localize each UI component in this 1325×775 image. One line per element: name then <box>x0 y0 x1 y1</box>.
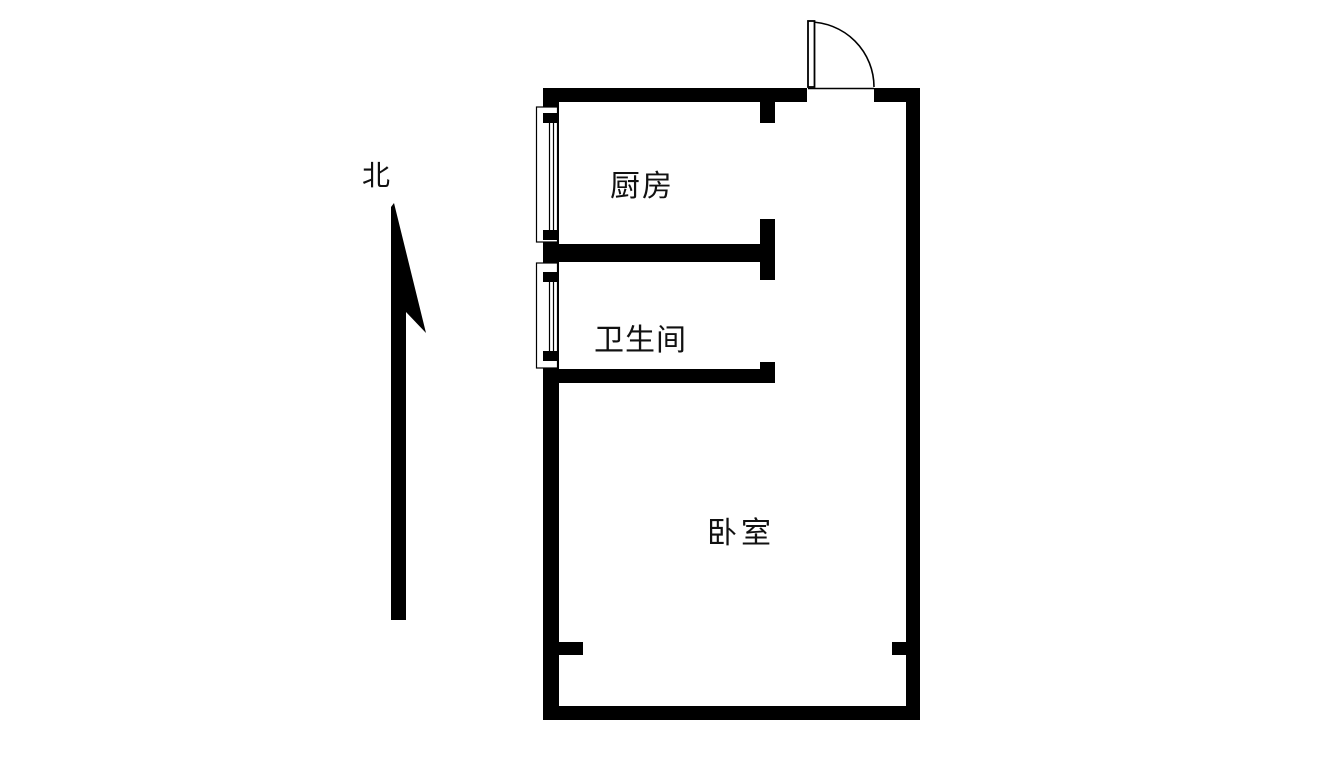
north-compass-label: 北 <box>362 161 390 190</box>
window-symbol-bathroom <box>537 263 558 368</box>
wall-top-left <box>543 88 807 102</box>
north-arrow-icon <box>391 203 426 620</box>
door-symbol-entry <box>808 21 874 89</box>
door-swing-arc <box>809 22 874 87</box>
wall-tab-bottom-right <box>892 642 906 655</box>
wall-kitchen-bathroom-divider <box>559 244 760 262</box>
door-leaf <box>808 21 815 87</box>
room-label-bedroom: 卧室 <box>707 518 775 550</box>
wall-bathroom-bedroom-divider <box>559 369 760 383</box>
room-label-kitchen: 厨房 <box>610 171 674 203</box>
wall-kitchen-opening-stub <box>760 102 775 123</box>
wall-bottom <box>543 706 920 720</box>
wall-bathroom-bedroom-divider-cap <box>760 362 775 383</box>
wall-right <box>906 88 920 720</box>
room-label-bathroom: 卫生间 <box>594 325 687 357</box>
floor-plan-canvas: 北 厨房 卫生间 卧室 <box>0 0 1325 775</box>
wall-tab-bottom-left <box>559 642 583 655</box>
floor-plan-drawing <box>0 0 1325 775</box>
window-symbol-kitchen <box>537 107 558 242</box>
wall-kitchen-bathroom-divider-cap <box>760 219 775 280</box>
